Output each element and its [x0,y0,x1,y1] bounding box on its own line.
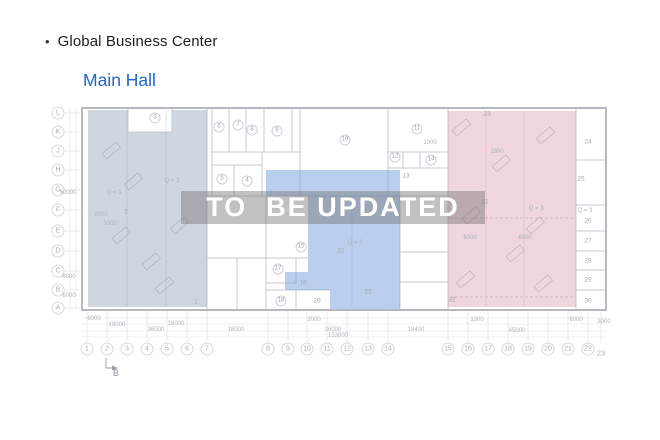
section-marker-line [106,358,112,368]
section-marker-arrow-icon [112,366,118,371]
page: • Global Business Center Main Hall [0,0,660,440]
watermark-band: TO BE UPDATED [181,191,485,224]
room3-notch [128,108,172,132]
watermark-text: TO BE UPDATED [206,192,460,223]
